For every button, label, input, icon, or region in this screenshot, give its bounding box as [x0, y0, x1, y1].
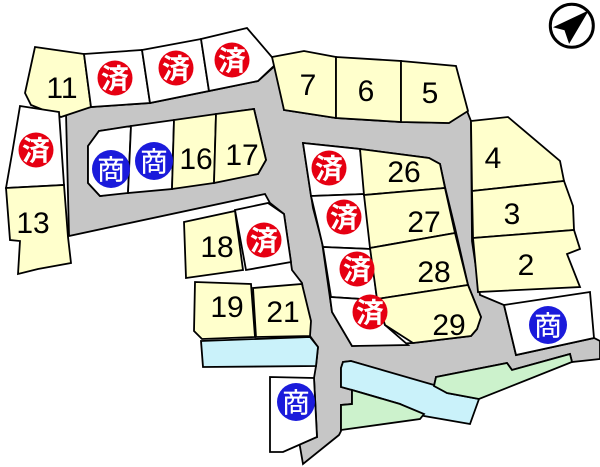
svg-text:26: 26 — [387, 156, 420, 189]
svg-text:7: 7 — [300, 69, 317, 102]
svg-text:4: 4 — [485, 142, 502, 175]
svg-text:18: 18 — [200, 231, 233, 264]
svg-text:5: 5 — [422, 77, 439, 110]
svg-text:27: 27 — [407, 206, 440, 239]
svg-text:16: 16 — [179, 143, 212, 176]
svg-text:29: 29 — [432, 309, 465, 342]
svg-text:19: 19 — [210, 291, 243, 324]
svg-text:17: 17 — [225, 139, 258, 172]
svg-text:3: 3 — [504, 198, 521, 231]
svg-text:6: 6 — [358, 75, 375, 108]
svg-text:11: 11 — [46, 72, 77, 105]
svg-text:21: 21 — [266, 296, 299, 329]
svg-text:13: 13 — [16, 207, 49, 240]
svg-text:2: 2 — [518, 249, 535, 282]
svg-text:28: 28 — [417, 256, 450, 289]
